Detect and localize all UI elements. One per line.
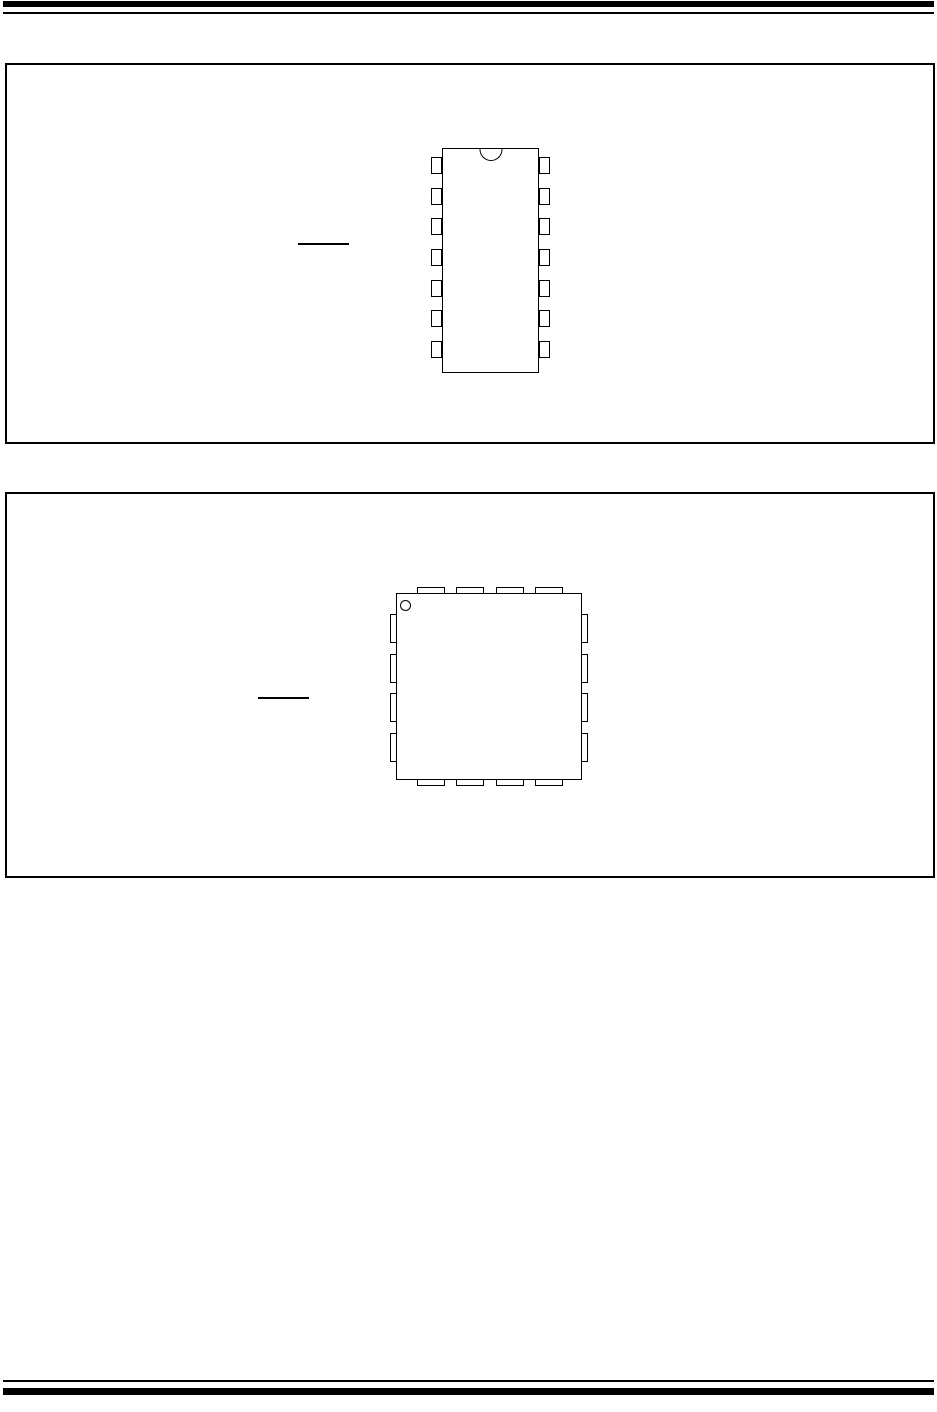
dip-pin xyxy=(539,310,550,327)
dip-pin xyxy=(431,310,442,327)
dip-pin xyxy=(431,188,442,205)
header-thin-rule xyxy=(3,12,934,14)
dip-pin xyxy=(539,188,550,205)
dip-pin xyxy=(431,157,442,174)
figure-box-qfn xyxy=(5,492,935,878)
header-thick-rule xyxy=(3,1,934,7)
dip-pin xyxy=(431,341,442,358)
figure-box-dip xyxy=(5,63,935,444)
footer-thin-rule xyxy=(3,1380,934,1382)
dip-pin xyxy=(539,341,550,358)
qfn-pin1-dot-icon xyxy=(400,600,411,611)
qfn-bottom-pin-row xyxy=(417,780,563,786)
footer-thick-rule xyxy=(3,1388,934,1395)
dip-pin xyxy=(431,249,442,266)
qfn-pin xyxy=(417,780,445,786)
qfn-right-pin-column xyxy=(582,614,588,762)
dip-right-pin-column xyxy=(539,157,550,358)
qfn-pin xyxy=(535,780,563,786)
dip-pin xyxy=(539,157,550,174)
dip-pin1-notch-icon xyxy=(479,149,502,161)
qfn-package-body xyxy=(396,593,582,780)
dip-pin xyxy=(539,218,550,235)
dip-pin xyxy=(539,249,550,266)
dip-pin xyxy=(431,280,442,297)
qfn-pin xyxy=(496,780,524,786)
qfn-pin xyxy=(456,780,484,786)
dip-label-overline xyxy=(298,243,349,245)
dip-left-pin-column xyxy=(431,157,442,358)
datasheet-page xyxy=(0,0,937,1412)
qfn-pin xyxy=(582,733,588,762)
qfn-pin xyxy=(582,654,588,683)
qfn-pin xyxy=(582,693,588,722)
qfn-label-overline xyxy=(258,697,309,699)
dip-pin xyxy=(431,218,442,235)
qfn-pin xyxy=(582,614,588,643)
dip-pin xyxy=(539,280,550,297)
dip-package-body xyxy=(442,148,539,373)
